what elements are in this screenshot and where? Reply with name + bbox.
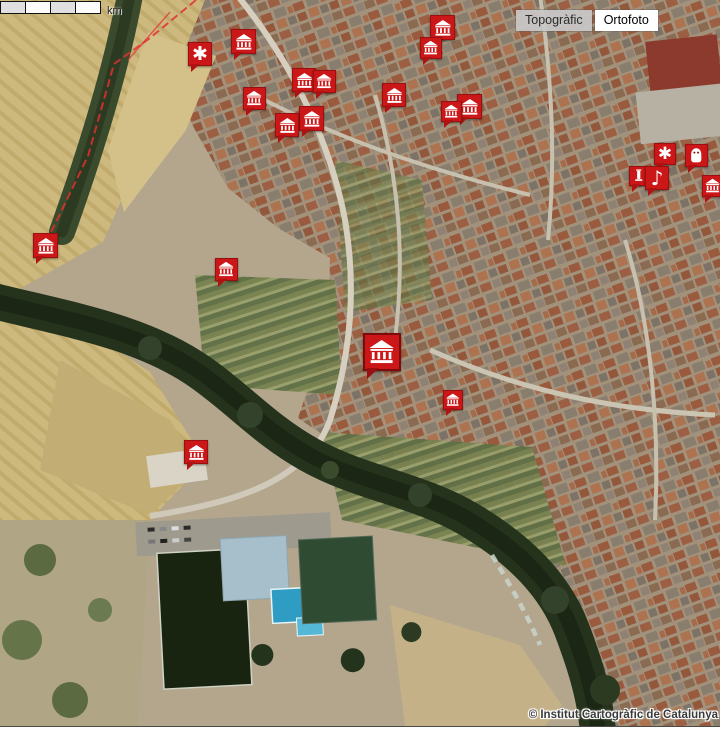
museum-marker[interactable] (443, 390, 463, 410)
museum-marker[interactable] (243, 87, 266, 110)
museum-marker[interactable] (33, 233, 58, 258)
asterisk-icon: ✱ (658, 146, 672, 163)
museum-icon (234, 32, 254, 52)
museum-icon (385, 86, 404, 105)
marker-tail (423, 57, 432, 65)
scale-bar-segment (0, 1, 26, 14)
music-icon: ♪ (651, 168, 664, 188)
music-marker[interactable]: ♪ (645, 166, 669, 190)
museum-marker[interactable] (215, 258, 238, 281)
marker-tail (632, 184, 641, 192)
map-attribution: © Institut Cartogràfic de Catalunya (529, 709, 718, 721)
museum-icon (187, 443, 206, 462)
marker-tail (302, 129, 311, 137)
scale-bar-segment (25, 1, 51, 14)
marker-tail (187, 462, 196, 470)
museum-icon (278, 116, 297, 135)
museum-marker[interactable] (702, 175, 720, 197)
map-canvas[interactable]: km Topogràfic Ortofoto ✱✱♪ © Institut Ca… (0, 0, 720, 727)
scale-bar-segment (75, 1, 101, 14)
asterisk-marker[interactable]: ✱ (188, 42, 212, 66)
marker-tail (385, 105, 394, 113)
marker-tail (444, 120, 453, 128)
layer-button-topografic[interactable]: Topogràfic (516, 10, 592, 31)
statue-icon (687, 146, 705, 164)
museum-icon (302, 109, 322, 129)
marker-tail (705, 195, 714, 203)
asterisk-marker[interactable]: ✱ (654, 143, 676, 165)
marker-tail (316, 91, 325, 99)
marker-tail (218, 279, 227, 287)
asterisk-icon: ✱ (192, 45, 208, 64)
marker-tail (446, 408, 455, 416)
marker-tail (648, 188, 657, 196)
museum-icon (443, 103, 459, 119)
museum-marker[interactable] (363, 333, 401, 371)
scale-bar-segment (50, 1, 76, 14)
layer-button-ortofoto[interactable]: Ortofoto (595, 10, 658, 31)
marker-tail (246, 108, 255, 116)
layer-toggle: Topogràfic Ortofoto (516, 10, 658, 31)
scale-bar-unit-label: km (107, 5, 122, 17)
museum-icon (460, 97, 480, 117)
statue-marker[interactable] (685, 144, 708, 167)
museum-marker[interactable] (441, 101, 462, 122)
museum-marker[interactable] (382, 83, 406, 107)
museum-icon (315, 72, 333, 90)
marker-tail (295, 90, 304, 98)
museum-marker[interactable] (313, 70, 336, 93)
museum-icon (433, 18, 453, 38)
museum-marker[interactable] (184, 440, 208, 464)
museum-icon (367, 337, 396, 366)
marker-tail (234, 52, 243, 60)
museum-marker[interactable] (231, 29, 256, 54)
marker-tail (688, 165, 697, 173)
museum-marker[interactable] (420, 37, 442, 59)
museum-icon (445, 392, 460, 407)
map-viewport: km Topogràfic Ortofoto ✱✱♪ © Institut Ca… (0, 0, 720, 730)
museum-marker[interactable] (299, 106, 324, 131)
marker-tail (36, 256, 45, 264)
museum-icon (36, 236, 56, 256)
museum-icon (217, 260, 235, 278)
aerial-imagery (0, 0, 720, 726)
marker-tail (367, 368, 379, 379)
museum-icon (422, 39, 439, 56)
museum-icon (704, 177, 720, 194)
marker-tail (191, 64, 200, 72)
museum-marker[interactable] (275, 113, 299, 137)
museum-icon (245, 89, 263, 107)
scale-bar (0, 1, 100, 14)
museum-icon (295, 71, 314, 90)
marker-tail (278, 135, 287, 143)
